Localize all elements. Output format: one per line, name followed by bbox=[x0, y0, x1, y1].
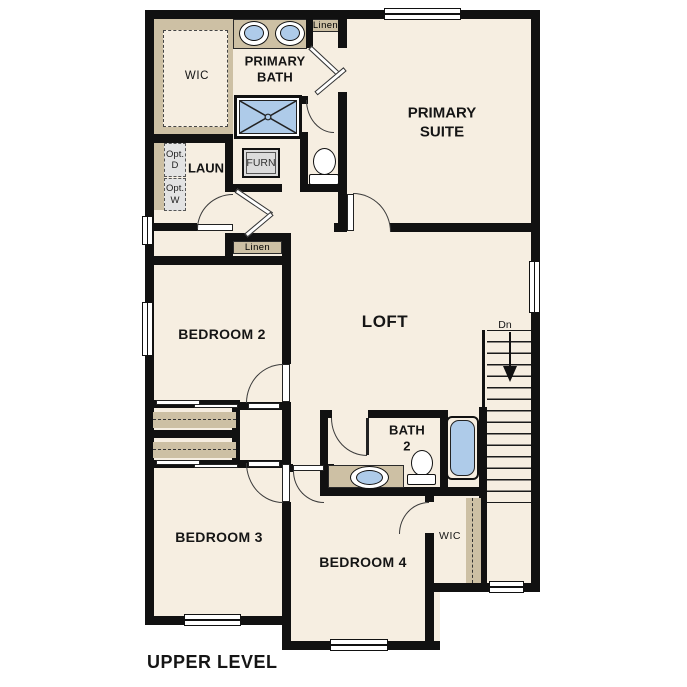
opt-dryer-label1: Opt. bbox=[166, 149, 184, 160]
bath2-sink-basin bbox=[356, 470, 383, 485]
bath2-line1: BATH bbox=[389, 422, 425, 438]
tub-icon bbox=[446, 416, 479, 480]
wic-upper-label: WIC bbox=[185, 70, 209, 82]
opening-bed2-se bbox=[248, 403, 280, 409]
primary-suite-label: PRIMARY SUITE bbox=[408, 104, 477, 142]
bedroom3-closet-rod-dash bbox=[153, 449, 236, 450]
bedroom2-closet-rod bbox=[153, 412, 236, 428]
wall-wic-bottom bbox=[145, 134, 233, 143]
primary-bath-line2: BATH bbox=[245, 69, 306, 85]
bedroom2-closet-door-b bbox=[194, 404, 238, 409]
hall-linen-label: Linen bbox=[245, 242, 270, 253]
bedroom3-label: BEDROOM 3 bbox=[175, 529, 263, 545]
wall-hall-west-b bbox=[282, 402, 291, 464]
stair-rail bbox=[482, 330, 485, 407]
hall-linen-rod: Linen bbox=[233, 241, 282, 254]
wall-bath2-top-b bbox=[368, 410, 448, 418]
window-bedroom2 bbox=[142, 302, 153, 356]
bedroom2-label: BEDROOM 2 bbox=[178, 326, 266, 342]
window-loft-right bbox=[529, 261, 540, 313]
opt-washer-label2: W bbox=[171, 195, 180, 206]
primary-sink-left-basin bbox=[244, 25, 264, 41]
wall-bath2-bottom bbox=[320, 487, 485, 496]
linen-top-label: Linen bbox=[313, 20, 338, 31]
bedroom3-closet-door-b bbox=[194, 464, 238, 469]
wall-hall-west-a bbox=[282, 233, 291, 364]
loft-label: LOFT bbox=[362, 312, 408, 332]
floor-plan: Opt. D Opt. W FURN Linen bbox=[0, 0, 687, 687]
toilet-bath2-icon bbox=[411, 450, 433, 476]
wall-bedroom2-top bbox=[145, 256, 291, 265]
wall-hall-west-c bbox=[282, 502, 291, 616]
shower-icon bbox=[234, 95, 302, 139]
wic-lower-rod-dash bbox=[472, 498, 473, 583]
stair-divider bbox=[509, 332, 511, 366]
bedroom3-closet-rod bbox=[153, 442, 236, 458]
wall-laundry-east bbox=[225, 134, 233, 192]
door-bedroom2-leaf bbox=[282, 364, 290, 402]
wic-lower-label: WIC bbox=[439, 530, 461, 542]
wall-bath2-top-a bbox=[320, 410, 332, 418]
wall-suite-west-b bbox=[338, 92, 347, 223]
door-bedroom3-leaf bbox=[282, 464, 290, 502]
furnace-label: FURN bbox=[246, 157, 275, 169]
wic-lower-rod bbox=[466, 498, 481, 583]
wall-suite-west-a bbox=[338, 10, 347, 48]
primary-bath-line1: PRIMARY bbox=[245, 53, 306, 69]
stairs-dn-label: Dn bbox=[498, 319, 511, 331]
wall-suite-bottom-a bbox=[334, 223, 347, 232]
toilet-bath2-tank bbox=[407, 474, 436, 485]
wall-closet-mid bbox=[145, 430, 240, 438]
wall-linen-top-west bbox=[306, 19, 313, 48]
opt-washer-label1: Opt. bbox=[166, 183, 184, 194]
wall-core-south-right bbox=[300, 184, 346, 192]
wall-hall-linen-west bbox=[225, 233, 233, 256]
bedroom2-closet-rod-dash bbox=[153, 419, 236, 420]
primary-suite-line2: SUITE bbox=[408, 123, 477, 142]
primary-suite-line1: PRIMARY bbox=[408, 104, 477, 123]
primary-bath-label: PRIMARY BATH bbox=[245, 53, 306, 84]
window-suite-top bbox=[384, 8, 461, 20]
bath2-line2: 2 bbox=[389, 438, 425, 454]
wall-wc-west-b bbox=[300, 132, 308, 192]
bedroom4-label: BEDROOM 4 bbox=[319, 554, 407, 570]
window-laundry bbox=[142, 216, 153, 245]
opt-dryer-label2: D bbox=[172, 160, 179, 171]
window-stairwell bbox=[489, 581, 524, 593]
floor-title: UPPER LEVEL bbox=[147, 652, 278, 673]
window-bedroom3 bbox=[184, 614, 241, 626]
bath2-label: BATH 2 bbox=[389, 422, 425, 453]
window-bedroom4 bbox=[330, 639, 388, 651]
furnace-box: FURN bbox=[242, 148, 280, 178]
stair-down-arrow-icon bbox=[503, 366, 517, 382]
toilet-primary-icon bbox=[313, 148, 336, 175]
wall-suite-bottom-b bbox=[390, 223, 540, 232]
laundry-label: LAUN bbox=[188, 161, 224, 176]
primary-sink-right-basin bbox=[280, 25, 300, 41]
opt-washer-box: Opt. W bbox=[164, 178, 186, 211]
opt-dryer-box: Opt. D bbox=[164, 143, 186, 177]
